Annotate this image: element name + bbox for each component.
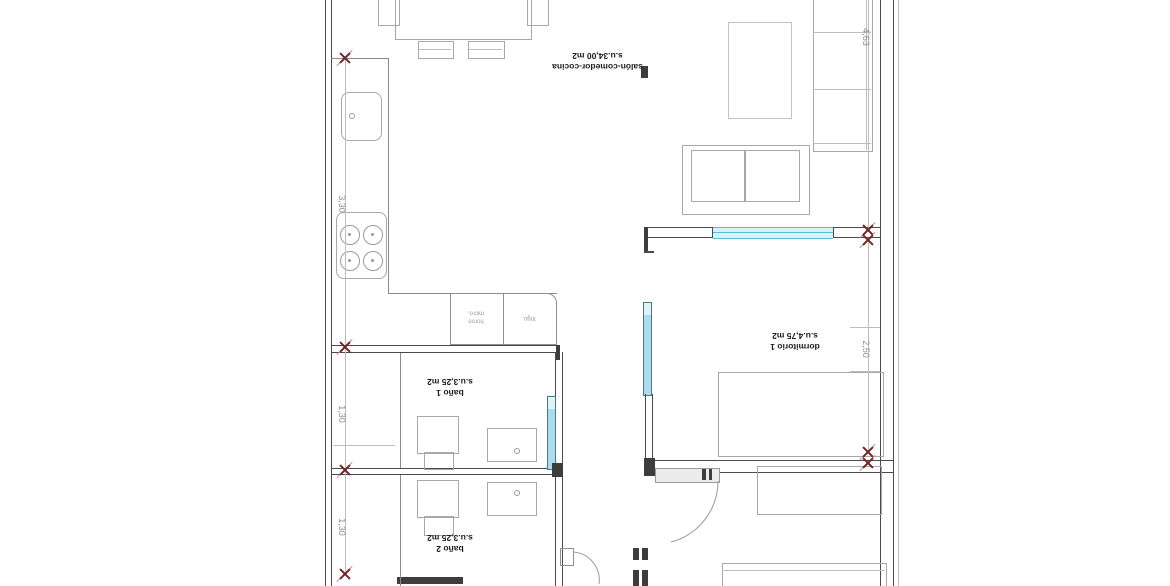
dim-tick-mark <box>339 568 351 580</box>
window-midline <box>713 232 833 233</box>
wall-divider-top-a <box>645 227 713 228</box>
dim-left-bottom: 1,30 <box>328 507 356 547</box>
bano1-area: s.u.3,25 m2 <box>405 376 495 387</box>
dining-chair <box>418 41 454 59</box>
wall-left-inner <box>331 0 332 586</box>
wall-left-outer <box>325 0 326 586</box>
dim-line-left <box>345 58 346 575</box>
door-arcs-overlay <box>0 0 1170 586</box>
wall-cap-foot <box>644 251 654 253</box>
coffee-table <box>728 22 792 119</box>
wall-divider-top-b <box>645 237 713 238</box>
room-label-bano1: baño 1 s.u.3,25 m2 <box>405 376 495 398</box>
bath1-partition <box>400 353 401 468</box>
dining-table <box>395 0 532 40</box>
bath1-washbasin <box>487 428 537 462</box>
wall-hall-jamb <box>552 463 563 477</box>
dim-tick-mark <box>862 234 874 246</box>
oven-label-line2: micro. <box>450 308 502 316</box>
sofa-seat-divider <box>813 89 871 90</box>
bottom-wall-cut <box>397 577 463 584</box>
bath1-toilet-tank <box>424 452 454 470</box>
loveseat-cushion <box>691 150 745 202</box>
wall-bath1-endcap <box>556 345 560 360</box>
bed-bottom-room <box>722 563 887 586</box>
salon-name: salón-comedor-cocina <box>535 61 660 72</box>
wall-divider-right-end <box>833 227 834 238</box>
wall-dorm-bottom-a <box>655 460 893 461</box>
dim-tick-mark <box>339 464 351 476</box>
dining-chair <box>468 41 505 59</box>
oven-label-line1: horno <box>450 316 502 324</box>
burner-center <box>371 233 374 236</box>
counter-right-edge <box>388 58 389 293</box>
door-stop-mark <box>709 469 712 480</box>
bath2-partition <box>400 475 401 586</box>
wardrobe <box>757 466 882 515</box>
dim-value: 4,63 <box>861 28 871 46</box>
kitchen-sink <box>341 92 382 141</box>
stove-burner <box>363 225 383 245</box>
jamb-notch <box>632 560 650 570</box>
sofa-armrest-line <box>813 143 871 144</box>
dim-right-top: 4,63 <box>852 14 880 60</box>
appliance-oven-label: horno micro. <box>450 308 502 324</box>
sink-drain <box>349 113 355 119</box>
bano2-name: baño 2 <box>405 543 495 554</box>
wall-dorm-left-a <box>645 394 646 464</box>
room-label-bano2: baño 2 s.u.3,25 m2 <box>405 532 495 554</box>
salon-area: s.u.34,00 m2 <box>535 50 660 61</box>
bath1-toilet <box>417 416 459 454</box>
window-dormitorio <box>713 227 833 239</box>
wall-dorm-left-b <box>652 394 653 464</box>
dim-right-middle: 2,50 <box>852 328 880 370</box>
dormitorio1-area: s.u.4,75 m2 <box>740 330 850 341</box>
dim-left-middle: 1,30 <box>328 394 356 434</box>
appliance-fridge-label: frigo. <box>503 313 555 321</box>
door-swing-arc <box>573 552 599 584</box>
wall-bath1-top-b <box>331 352 560 353</box>
stove-burner <box>340 251 360 271</box>
room-label-dormitorio1: dormitorio 1 s.u.4,75 m2 <box>740 330 850 352</box>
door-stop-mark <box>702 469 706 480</box>
dining-chair <box>527 0 549 26</box>
bed-headboard-line <box>722 570 885 571</box>
wall-right-edge-line <box>898 0 899 586</box>
dim-tick-mark <box>339 341 351 353</box>
dormitorio1-name: dormitorio 1 <box>740 341 850 352</box>
burner-center <box>371 259 374 262</box>
door-leaf-tip <box>548 397 555 409</box>
wall-right-outer <box>893 0 894 586</box>
dim-value: 1,30 <box>337 518 347 536</box>
burner-center <box>348 233 351 236</box>
door-leaf-tip <box>644 303 651 315</box>
wall-bath-divider-b <box>331 474 560 475</box>
bed-dormitorio1 <box>718 372 884 457</box>
chair-inner-line <box>469 49 502 50</box>
door-bath1-leaf <box>547 396 556 470</box>
door-dormitorio-leaf <box>643 302 652 396</box>
door-swing-arc <box>671 481 718 542</box>
dim-tick-mark <box>862 457 874 469</box>
wall-bath1-top-a <box>331 345 560 346</box>
stove-burner <box>363 251 383 271</box>
wall-dorm-jamb <box>644 458 655 476</box>
dining-chair <box>378 0 400 26</box>
chair-inner-line <box>419 49 451 50</box>
dim-ext-dash <box>850 371 880 372</box>
stove-burner <box>340 225 360 245</box>
bath1-fixture-line <box>333 445 395 446</box>
floor-plan-canvas: horno micro. frigo. salón-comedor-cocina… <box>0 0 1170 586</box>
bano2-area: s.u.3,25 m2 <box>405 532 495 543</box>
dim-tick-mark <box>339 52 351 64</box>
dim-value: 3,30 <box>337 195 347 213</box>
bath2-toilet <box>417 480 459 518</box>
bath2-basin-drain <box>514 490 520 496</box>
room-label-salon: salón-comedor-cocina s.u.34,00 m2 <box>535 50 660 72</box>
dim-left-top: 3,30 <box>328 184 356 224</box>
dim-value: 1,30 <box>337 405 347 423</box>
burner-center <box>348 259 351 262</box>
dim-value: 2,50 <box>861 340 871 358</box>
loveseat-cushion <box>745 150 800 202</box>
bano1-name: baño 1 <box>405 387 495 398</box>
bath2-washbasin <box>487 482 537 516</box>
wall-cap <box>644 227 648 253</box>
bath1-basin-drain <box>514 448 520 454</box>
jamb-bottom-left <box>560 548 574 566</box>
